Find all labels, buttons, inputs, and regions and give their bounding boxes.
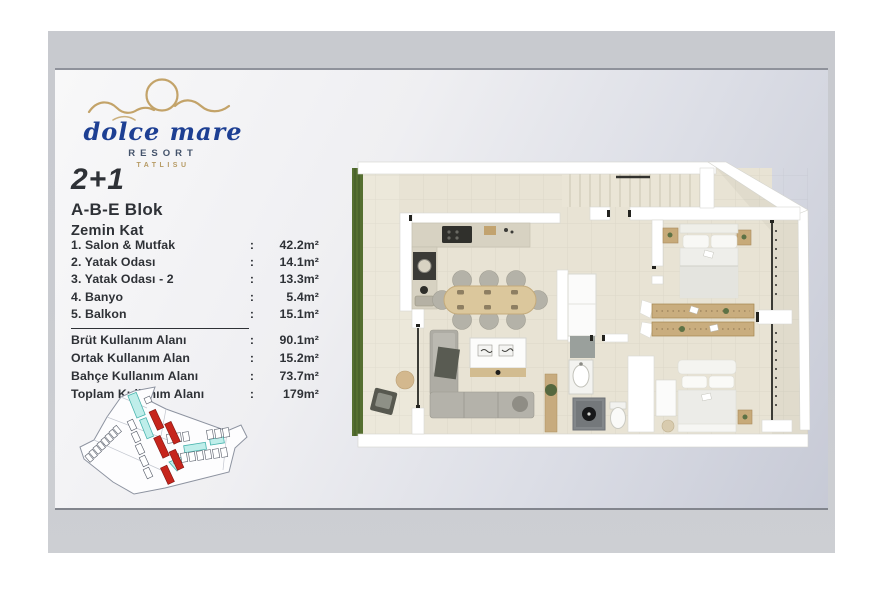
area-value: 13.3m² bbox=[259, 272, 319, 286]
area-label: Ortak Kullanım Alan bbox=[71, 351, 245, 365]
area-colon: : bbox=[245, 307, 259, 321]
area-row: 2. Yatak Odası:14.1m² bbox=[71, 255, 319, 272]
area-value: 15.1m² bbox=[259, 307, 319, 321]
floorplan-card: dolce mare RESORT TATLISU 2+1 A-B-E Blok… bbox=[55, 68, 828, 510]
area-label: Bahçe Kullanım Alanı bbox=[71, 369, 245, 383]
area-colon: : bbox=[245, 255, 259, 269]
brand-subtitle: RESORT bbox=[83, 148, 243, 159]
area-label: 1. Salon & Mutfak bbox=[71, 238, 245, 252]
area-value: 179m² bbox=[259, 387, 319, 401]
area-value: 5.4m² bbox=[259, 290, 319, 304]
area-label: 4. Banyo bbox=[71, 290, 245, 304]
throw-blanket bbox=[434, 347, 460, 380]
kitchen-sink bbox=[415, 296, 434, 306]
area-value: 14.1m² bbox=[259, 255, 319, 269]
area-value: 73.7m² bbox=[259, 369, 319, 383]
area-table: 1. Salon & Mutfak:42.2m²2. Yatak Odası:1… bbox=[71, 238, 319, 405]
cooktop bbox=[442, 226, 472, 243]
area-value: 15.2m² bbox=[259, 351, 319, 365]
garden-hedge bbox=[352, 168, 363, 436]
unit-block: A-B-E Blok bbox=[71, 200, 163, 220]
living-room bbox=[430, 330, 534, 418]
area-colon: : bbox=[245, 333, 259, 347]
area-label: 2. Yatak Odası bbox=[71, 255, 245, 269]
area-colon: : bbox=[245, 238, 259, 252]
area-colon: : bbox=[245, 272, 259, 286]
area-value: 42.2m² bbox=[259, 238, 319, 252]
area-row: Ortak Kullanım Alan:15.2m² bbox=[71, 351, 319, 369]
area-label: Brüt Kullanım Alanı bbox=[71, 333, 245, 347]
site-plan-map bbox=[77, 384, 255, 502]
divider bbox=[71, 328, 249, 329]
area-colon: : bbox=[245, 351, 259, 365]
unit-floor: Zemin Kat bbox=[71, 223, 163, 239]
area-value: 90.1m² bbox=[259, 333, 319, 347]
area-row: 1. Salon & Mutfak:42.2m² bbox=[71, 238, 319, 255]
area-row: 4. Banyo:5.4m² bbox=[71, 290, 319, 307]
area-colon: : bbox=[245, 290, 259, 304]
staircase bbox=[562, 174, 714, 207]
brand-name: dolce mare bbox=[83, 120, 243, 144]
tall-cabinet bbox=[568, 274, 596, 336]
room-list: 1. Salon & Mutfak:42.2m²2. Yatak Odası:1… bbox=[71, 238, 319, 324]
area-colon: : bbox=[245, 369, 259, 383]
area-row: 3. Yatak Odası - 2:13.3m² bbox=[71, 272, 319, 289]
area-row: Brüt Kullanım Alanı:90.1m² bbox=[71, 333, 319, 351]
logo: dolce mare RESORT TATLISU bbox=[83, 74, 243, 169]
unit-info: 2+1 A-B-E Blok Zemin Kat bbox=[71, 164, 163, 239]
area-row: 5. Balkon:15.1m² bbox=[71, 307, 319, 324]
toilet bbox=[611, 408, 626, 429]
area-label: 5. Balkon bbox=[71, 307, 245, 321]
area-label: 3. Yatak Odası - 2 bbox=[71, 272, 245, 286]
unit-type: 2+1 bbox=[71, 164, 163, 196]
floor-plan bbox=[352, 152, 810, 452]
brochure-panel: dolce mare RESORT TATLISU 2+1 A-B-E Blok… bbox=[48, 31, 835, 553]
